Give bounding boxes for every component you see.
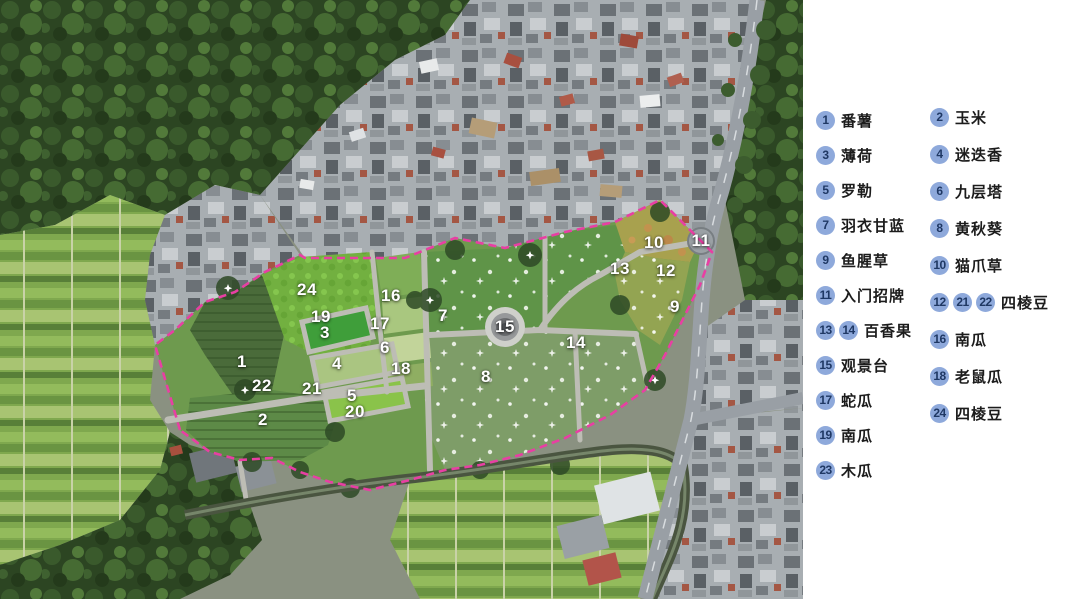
legend-number-badges: 10 (930, 256, 949, 275)
legend-number-badge: 24 (930, 404, 949, 423)
legend-item-label: 迷迭香 (955, 144, 1003, 165)
legend-item: 17 蛇瓜 (816, 383, 912, 418)
legend-item-label: 百香果 (864, 320, 912, 341)
legend-number-badge: 6 (930, 182, 949, 201)
legend-item: 9 鱼腥草 (816, 243, 912, 278)
legend-item-label: 番薯 (841, 110, 873, 131)
legend-item-label: 猫爪草 (955, 255, 1003, 276)
garden-map-area: 1234567891011121314151617181920212224 (0, 0, 803, 599)
legend-number-badge: 21 (953, 293, 972, 312)
legend-number-badges: 122122 (930, 293, 995, 312)
legend-item: 15 观景台 (816, 348, 912, 383)
legend-item-label: 罗勒 (841, 180, 873, 201)
legend-number-badge: 7 (816, 216, 835, 235)
legend-item-label: 老鼠瓜 (955, 366, 1003, 387)
legend-item-label: 南瓜 (955, 329, 987, 350)
legend-item-label: 四棱豆 (955, 403, 1003, 424)
legend-number-badge: 11 (816, 286, 835, 305)
legend-number-badge: 8 (930, 219, 949, 238)
viewing-platform (485, 307, 525, 347)
legend-item-label: 观景台 (841, 355, 889, 376)
legend-item-label: 南瓜 (841, 425, 873, 446)
legend-item: 16 南瓜 (930, 321, 1049, 358)
legend-number-badge: 15 (816, 356, 835, 375)
legend-number-badges: 3 (816, 146, 835, 165)
legend-item-label: 羽衣甘蓝 (841, 215, 905, 236)
legend-number-badge: 10 (930, 256, 949, 275)
legend-number-badges: 24 (930, 404, 949, 423)
legend-number-badge: 17 (816, 391, 835, 410)
legend-item-label: 木瓜 (841, 460, 873, 481)
legend-item-label: 蛇瓜 (841, 390, 873, 411)
aerial-map (0, 0, 803, 599)
legend-column-1: 1 番薯 3 薄荷 5 罗勒 7 羽衣甘蓝 9 鱼腥草 11 入门招牌 1314… (816, 103, 912, 488)
legend-number-badges: 15 (816, 356, 835, 375)
legend-number-badges: 17 (816, 391, 835, 410)
legend-number-badge: 23 (816, 461, 835, 480)
legend-number-badge: 18 (930, 367, 949, 386)
legend-item-label: 入门招牌 (841, 285, 905, 306)
legend-item: 24 四棱豆 (930, 395, 1049, 432)
legend-item: 6 九层塔 (930, 173, 1049, 210)
legend-panel: 1 番薯 3 薄荷 5 罗勒 7 羽衣甘蓝 9 鱼腥草 11 入门招牌 1314… (803, 0, 1080, 599)
legend-item-label: 薄荷 (841, 145, 873, 166)
legend-item: 19 南瓜 (816, 418, 912, 453)
legend-item: 1314 百香果 (816, 313, 912, 348)
legend-number-badge: 22 (976, 293, 995, 312)
legend-number-badges: 1314 (816, 321, 858, 340)
legend-item-label: 鱼腥草 (841, 250, 889, 271)
legend-number-badge: 5 (816, 181, 835, 200)
legend-item-label: 九层塔 (955, 181, 1003, 202)
legend-item-label: 黄秋葵 (955, 218, 1003, 239)
legend-number-badges: 8 (930, 219, 949, 238)
legend-item-label: 玉米 (955, 107, 987, 128)
legend-number-badges: 9 (816, 251, 835, 270)
legend-number-badges: 16 (930, 330, 949, 349)
legend-item: 18 老鼠瓜 (930, 358, 1049, 395)
legend-number-badges: 23 (816, 461, 835, 480)
legend-number-badge: 3 (816, 146, 835, 165)
legend-item: 23 木瓜 (816, 453, 912, 488)
legend-item: 7 羽衣甘蓝 (816, 208, 912, 243)
legend-item: 10 猫爪草 (930, 247, 1049, 284)
legend-item: 2 玉米 (930, 99, 1049, 136)
legend-number-badge: 14 (839, 321, 858, 340)
legend-number-badge: 16 (930, 330, 949, 349)
legend-item: 8 黄秋葵 (930, 210, 1049, 247)
legend-number-badges: 18 (930, 367, 949, 386)
legend-number-badge: 4 (930, 145, 949, 164)
legend-number-badges: 6 (930, 182, 949, 201)
legend-item: 11 入门招牌 (816, 278, 912, 313)
legend-number-badges: 11 (816, 286, 835, 305)
legend-column-2: 2 玉米 4 迷迭香 6 九层塔 8 黄秋葵 10 猫爪草 122122 四棱豆… (930, 99, 1049, 432)
legend-number-badges: 1 (816, 111, 835, 130)
legend-number-badges: 19 (816, 426, 835, 445)
legend-number-badges: 2 (930, 108, 949, 127)
screenshot-root: 1234567891011121314151617181920212224 1 … (0, 0, 1080, 599)
legend-number-badge: 12 (930, 293, 949, 312)
legend-number-badge: 2 (930, 108, 949, 127)
legend-item: 1 番薯 (816, 103, 912, 138)
legend-number-badge: 19 (816, 426, 835, 445)
legend-item: 4 迷迭香 (930, 136, 1049, 173)
legend-item: 3 薄荷 (816, 138, 912, 173)
legend-number-badge: 1 (816, 111, 835, 130)
legend-number-badges: 7 (816, 216, 835, 235)
legend-item-label: 四棱豆 (1001, 292, 1049, 313)
legend-item: 5 罗勒 (816, 173, 912, 208)
legend-number-badges: 4 (930, 145, 949, 164)
legend-number-badges: 5 (816, 181, 835, 200)
legend-item: 122122 四棱豆 (930, 284, 1049, 321)
legend-number-badge: 9 (816, 251, 835, 270)
legend-number-badge: 13 (816, 321, 835, 340)
